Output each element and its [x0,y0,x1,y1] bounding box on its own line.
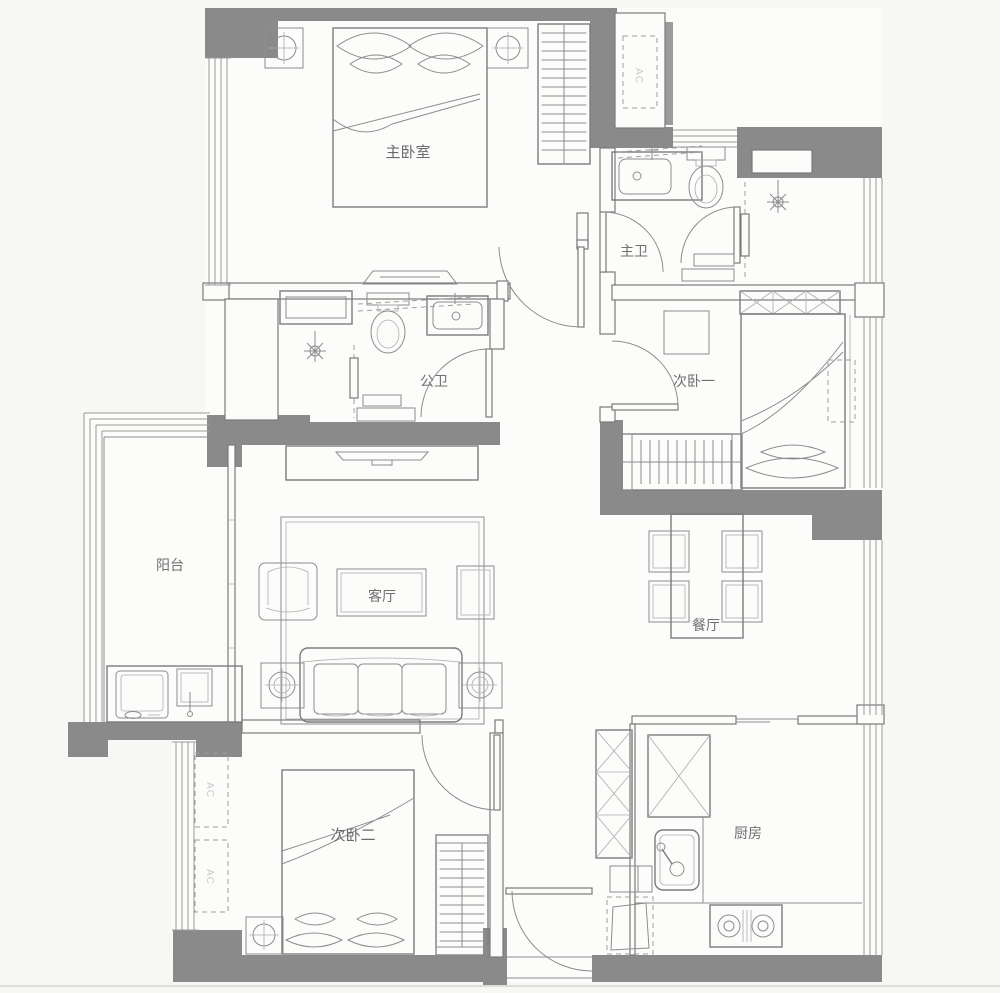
floor-plan-drawing: AC [0,0,1000,993]
shower-niche [752,150,812,173]
label-balcony: 阳台 [156,557,184,573]
label-master-bedroom: 主卧室 [385,144,430,161]
label-bedroom-one: 次卧一 [673,373,715,389]
label-dining-room: 餐厅 [692,617,720,633]
label-master-bath: 主卫 [620,243,648,259]
ac-label: AC [204,782,215,798]
ac-platform-roof: AC [615,13,665,128]
label-kitchen: 厨房 [734,825,762,841]
floor-plan-page: AC [0,0,1000,993]
label-living-room: 客厅 [368,588,396,604]
ac-label: AC [633,68,644,84]
ac-label: AC [204,869,215,885]
label-public-bath: 公卫 [420,373,448,389]
label-bedroom-two: 次卧二 [330,827,375,844]
